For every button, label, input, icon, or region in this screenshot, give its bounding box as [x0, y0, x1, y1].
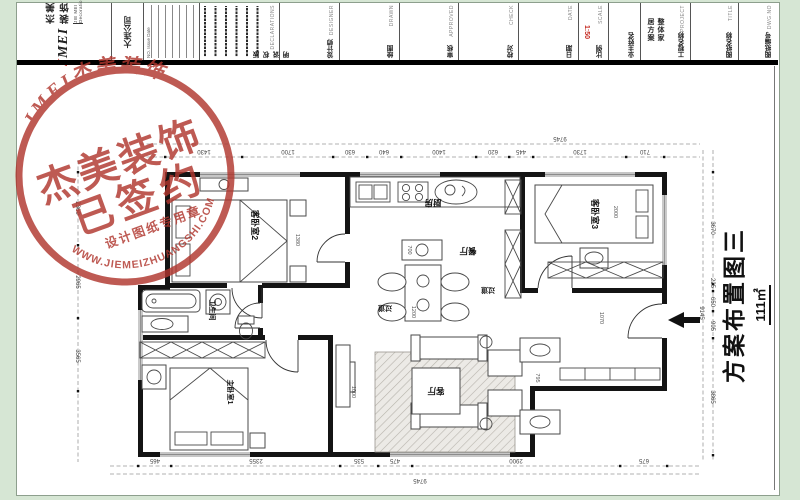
room-label-hall1: 过道 [481, 286, 495, 295]
svg-text:2900: 2900 [509, 457, 523, 463]
svg-text:675: 675 [638, 457, 649, 463]
titleblock-cell-drawn: DRAWN 绘图 [340, 3, 400, 60]
armchair-1 [488, 350, 522, 376]
svg-text:700: 700 [406, 245, 412, 254]
svg-text:795: 795 [534, 373, 540, 382]
tv-stand [336, 345, 350, 407]
svg-text:1700: 1700 [281, 148, 295, 154]
svg-text:1400: 1400 [432, 148, 446, 154]
svg-text:535: 535 [353, 457, 364, 463]
titleblock-cell-scale: 1:50 SCALE 比例 [579, 3, 609, 60]
dresser-master [142, 365, 166, 389]
titleblock-cell-revisions: NO. Issue Date [144, 3, 200, 60]
svg-text:640: 640 [378, 148, 389, 154]
titleblock-cell-check: CHECK 校对 [459, 3, 519, 60]
brand-subtitle: 杰美装饰 JIE MEI Decoration [45, 0, 83, 24]
svg-text:465: 465 [149, 457, 160, 463]
bed-bedroom2 [172, 200, 287, 282]
project-value: 整体家居方案 [645, 17, 665, 46]
svg-text:1070: 1070 [598, 312, 604, 324]
titleblock-cell-dwgno: DWG.NO 图纸编号 [739, 3, 777, 60]
room-label-bedroom2: 客卧室2 [250, 209, 260, 241]
svg-text:9745: 9745 [553, 135, 567, 141]
drawing-area: 111㎡ [750, 285, 771, 324]
title-block: JMEI 杰美装饰 JIE MEI Decoration 大连公司 NO. Is… [17, 3, 777, 61]
svg-text:9145: 9145 [698, 306, 704, 320]
svg-text:9745: 9745 [413, 477, 427, 483]
drawing-sheet-page: JMEI 杰美装饰 JIE MEI Decoration 大连公司 NO. Is… [0, 0, 800, 500]
drawing-title: 方案布置图三 [715, 227, 749, 383]
titleblock-cell-company: 大连公司 [112, 3, 144, 60]
room-label-kitchen: 厨房 [424, 198, 441, 208]
wardrobe-master [140, 342, 265, 358]
furniture [140, 177, 700, 452]
titleblock-cell-declaration: DECLARATIONS 版权说明 [200, 3, 280, 60]
sofa-top [420, 337, 478, 359]
room-label-bedroom3: 客卧室3 [590, 198, 600, 230]
titleblock-cell-date: DATE 日期 [519, 3, 579, 60]
room-label-bath: 卫生间 [208, 300, 217, 321]
svg-text:3565: 3565 [74, 349, 80, 363]
entry-arrow [668, 312, 700, 328]
titleblock-cell-designer: DESIGNER 设计师 [280, 3, 340, 60]
svg-text:3865: 3865 [709, 390, 715, 404]
svg-text:2000: 2000 [612, 206, 618, 218]
floor-plan: 客卧室2 厨房 餐厅 客卧室3 卫生间 过道 过道 客厅 主卧室1 1380 7… [60, 120, 720, 492]
titleblock-cell-owner: 业主姓名 [609, 3, 641, 60]
armchair-2 [488, 390, 522, 416]
bed-master [170, 368, 248, 450]
svg-text:1730: 1730 [573, 148, 587, 154]
room-label-hall2: 过道 [378, 304, 392, 313]
svg-text:620: 620 [487, 148, 498, 154]
svg-text:710: 710 [639, 148, 650, 154]
room-label-living: 客厅 [427, 386, 446, 396]
fridge-cabinet [505, 230, 521, 298]
drawing-title-block: 方案布置图三 111㎡ [708, 220, 778, 390]
svg-text:2360: 2360 [74, 201, 80, 215]
svg-text:1000: 1000 [350, 386, 356, 398]
room-label-master: 主卧室1 [226, 380, 235, 405]
svg-text:1200: 1200 [410, 306, 416, 318]
svg-text:2965: 2965 [74, 275, 80, 289]
svg-text:445: 445 [515, 148, 526, 154]
svg-text:475: 475 [389, 457, 400, 463]
svg-text:1430: 1430 [197, 148, 211, 154]
titleblock-cell-approved: APPROVED 审核 [400, 3, 460, 60]
company-logo: JMEI 杰美装饰 JIE MEI Decoration [17, 3, 112, 60]
svg-text:2355: 2355 [249, 457, 263, 463]
titleblock-cell-project: 整体家居方案 PROJECT 工程名称 [641, 3, 691, 60]
revision-header: NO. Issue Date [146, 5, 151, 58]
titleblock-rule [17, 60, 778, 65]
bathtub [142, 290, 200, 312]
scale-value: 1:50 [583, 24, 590, 38]
svg-text:1380: 1380 [294, 234, 300, 246]
revision-rows [151, 5, 197, 58]
svg-text:630: 630 [344, 148, 355, 154]
titleblock-cell-title: TITLE 图纸名称 [691, 3, 739, 60]
room-label-dining: 餐厅 [459, 246, 478, 256]
